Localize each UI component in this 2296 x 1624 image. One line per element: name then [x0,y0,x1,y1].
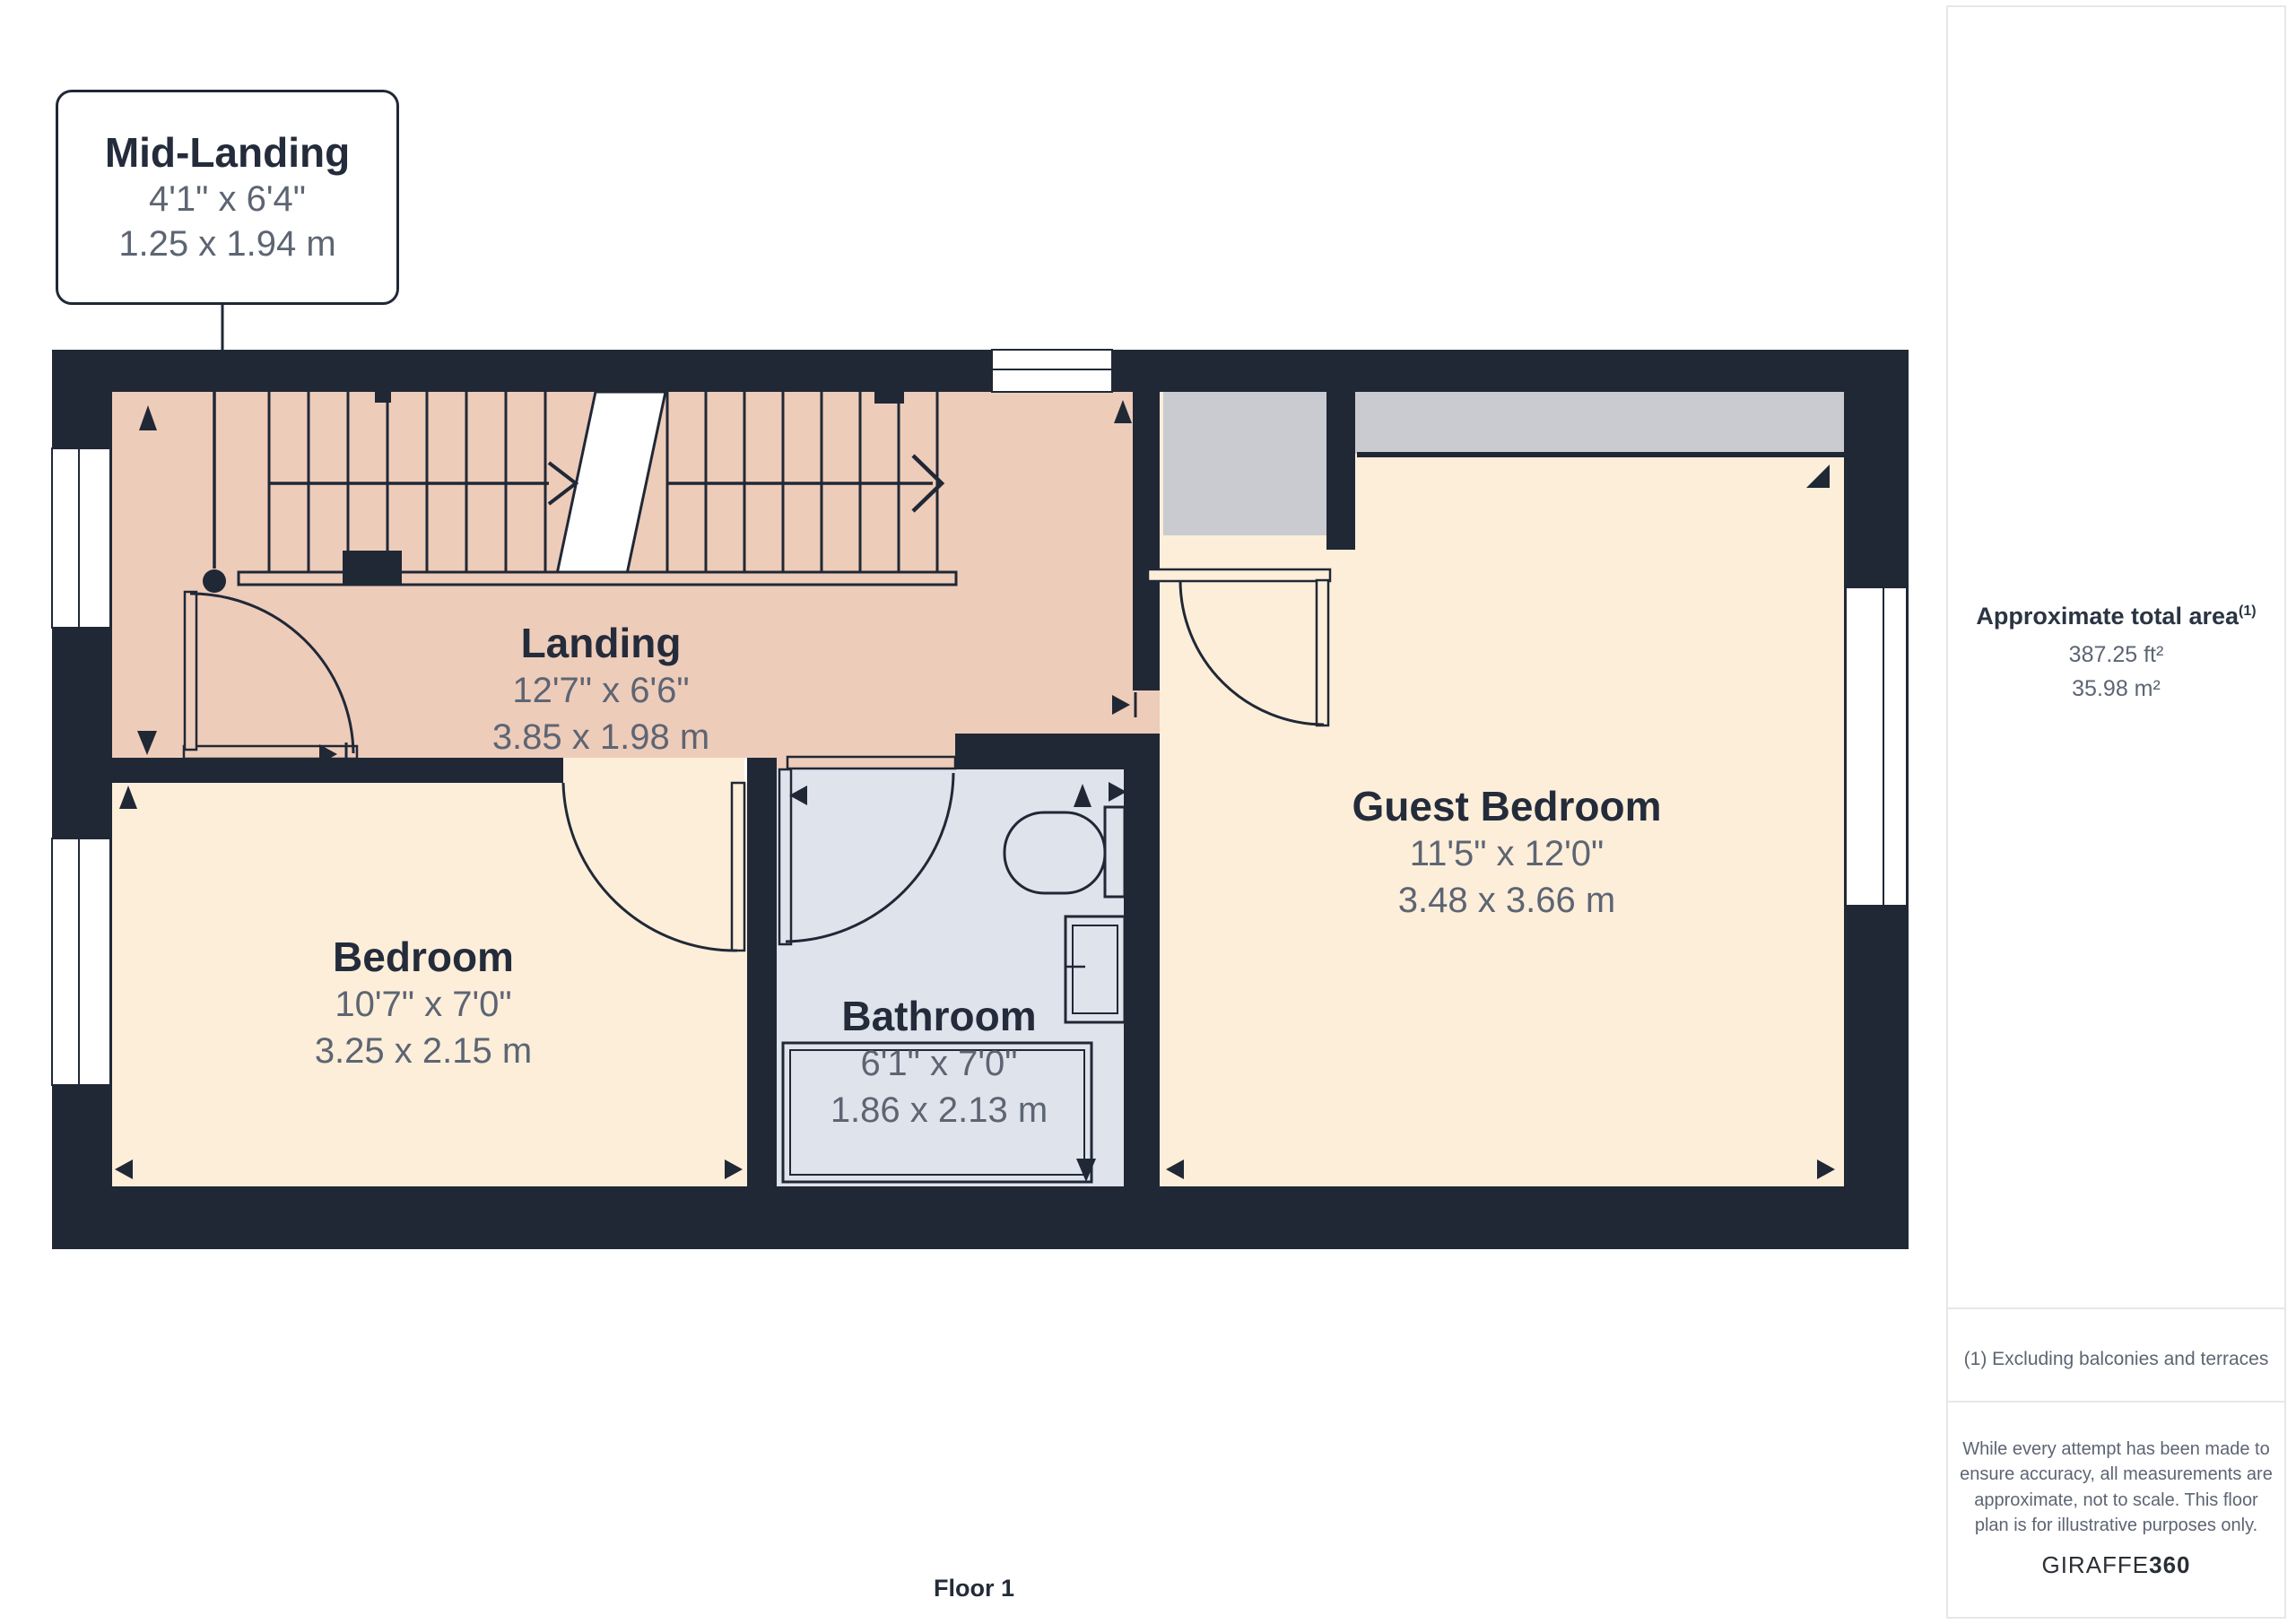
room-name: Bathroom [831,992,1048,1040]
guest-door-leaf [1317,580,1328,725]
total-area-title-text: Approximate total area [1976,603,2239,630]
room-dims-imperial: 10'7" x 7'0" [315,981,532,1028]
sidebar-divider [1948,1307,2284,1309]
disclaimer-line: approximate, not to scale. This floor [1948,1488,2284,1513]
landing-label: Landing 12'7" x 6'6" 3.85 x 1.98 m [492,619,709,760]
info-sidebar: Approximate total area(1) 387.25 ft² 35.… [1946,5,2286,1619]
toilet-cistern-icon [1105,807,1125,897]
room-name: Bedroom [315,933,532,981]
room-dims-metric: 1.25 x 1.94 m [118,221,335,266]
bathroom-door-threshold [787,757,955,769]
room-dims-imperial: 6'1" x 7'0" [831,1040,1048,1087]
room-dims-metric: 3.25 x 2.15 m [315,1028,532,1074]
total-area-ft: 387.25 ft² [1948,642,2284,668]
sidebar-divider [1948,1401,2284,1403]
room-name: Mid-Landing [105,128,350,177]
bathroom-door-leaf [779,769,791,944]
floor-title: Floor 1 [934,1575,1014,1602]
room-dims-imperial: 4'1" x 6'4" [149,177,306,221]
room-dims-metric: 3.85 x 1.98 m [492,714,709,760]
disclaimer-text: While every attempt has been made to ens… [1948,1437,2284,1539]
room-dims-metric: 3.48 x 3.66 m [1352,877,1661,924]
footnote-text: (1) Excluding balconies and terraces [1948,1349,2284,1370]
stair-newel-block [343,551,402,585]
midlanding-callout: Mid-Landing 4'1" x 6'4" 1.25 x 1.94 m [56,90,399,305]
bathroom-label: Bathroom 6'1" x 7'0" 1.86 x 2.13 m [831,992,1048,1133]
giraffe360-logo: GIRAFFE360 [1948,1551,2284,1579]
room-name: Guest Bedroom [1352,782,1661,830]
toilet-icon [1004,812,1105,893]
room-dims-imperial: 11'5" x 12'0" [1352,830,1661,877]
brand-name: GIRAFFE [2041,1551,2149,1578]
bedroom-door-leaf [732,783,744,951]
landing-door-leaf [185,592,196,750]
total-area-footnote-ref: (1) [2239,604,2257,619]
room-dims-metric: 1.86 x 2.13 m [831,1087,1048,1133]
disclaimer-line: plan is for illustrative purposes only. [1948,1513,2284,1538]
disclaimer-line: ensure accuracy, all measurements are [1948,1462,2284,1487]
brand-suffix: 360 [2149,1551,2190,1578]
window-left-landing [52,448,110,628]
guest-door-threshold [1148,569,1330,581]
total-area-m: 35.98 m² [1948,676,2284,702]
room-dims-imperial: 12'7" x 6'6" [492,667,709,714]
disclaimer-line: While every attempt has been made to [1948,1437,2284,1462]
guest-bedroom-label: Guest Bedroom 11'5" x 12'0" 3.48 x 3.66 … [1352,782,1661,924]
room-name: Landing [492,619,709,667]
window-right-guest [1846,587,1907,906]
floorplan-page: Mid-Landing 4'1" x 6'4" 1.25 x 1.94 m La… [0,0,2296,1624]
newel-post [203,569,226,593]
window-left-bedroom [52,838,110,1085]
bedroom-label: Bedroom 10'7" x 7'0" 3.25 x 2.15 m [315,933,532,1074]
total-area-title: Approximate total area(1) [1948,603,2284,630]
window-top [992,350,1112,392]
